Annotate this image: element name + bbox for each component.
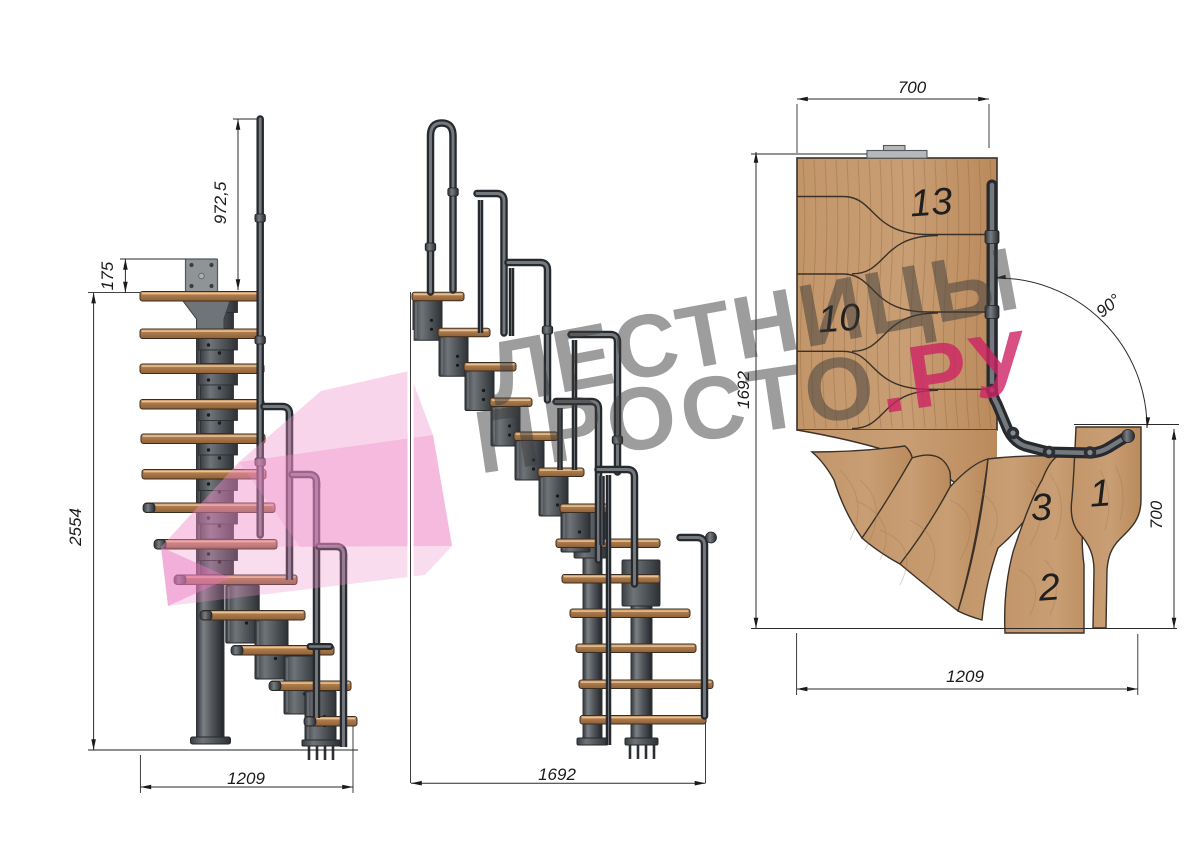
svg-text:700: 700 [1147,500,1166,529]
svg-text:1692: 1692 [538,765,576,784]
svg-text:175: 175 [98,261,117,290]
svg-text:1209: 1209 [946,667,984,686]
svg-text:700: 700 [898,78,927,97]
svg-text:1209: 1209 [227,769,265,788]
svg-text:13: 13 [909,181,954,226]
svg-text:972,5: 972,5 [211,181,230,224]
svg-text:2554: 2554 [66,508,85,547]
svg-text:3: 3 [1029,486,1053,529]
svg-text:2: 2 [1036,566,1061,609]
svg-text:1: 1 [1088,472,1112,515]
